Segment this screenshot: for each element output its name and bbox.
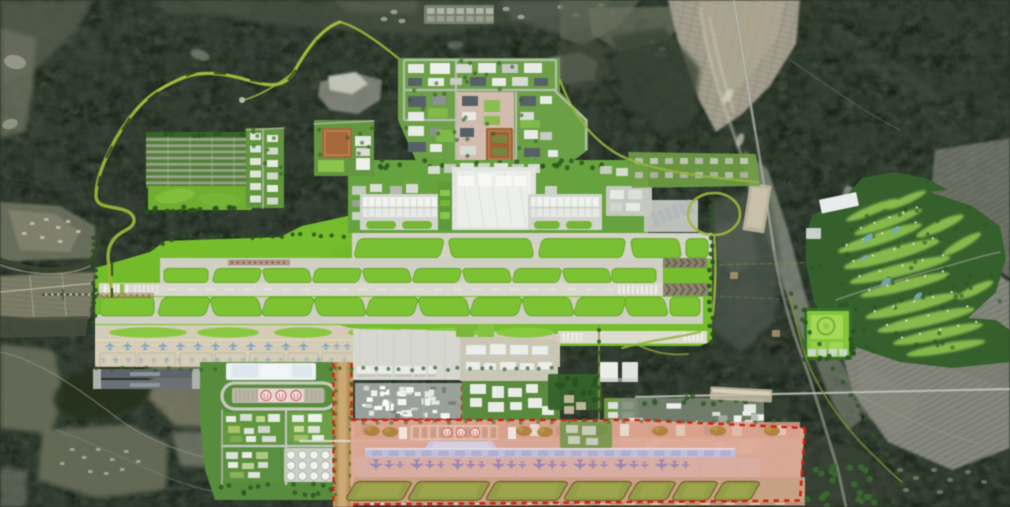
svg-text:U: U: [293, 391, 298, 400]
svg-text:U: U: [444, 430, 449, 437]
svg-text:U: U: [263, 391, 268, 400]
svg-text:U: U: [472, 430, 477, 437]
svg-text:U: U: [458, 430, 463, 437]
svg-text:U: U: [278, 391, 283, 400]
